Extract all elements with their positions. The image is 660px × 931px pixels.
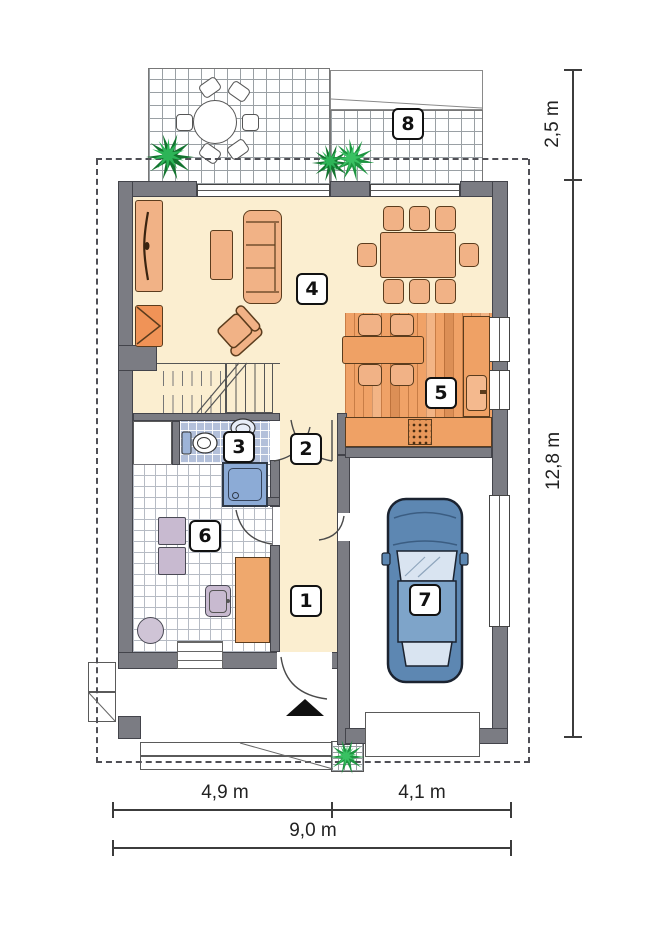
- room-label-6: 6: [189, 520, 221, 552]
- dim-tick: [510, 840, 512, 856]
- room-number: 8: [401, 113, 414, 135]
- dim-label-bottom-total: 9,0 m: [263, 820, 363, 842]
- room-number: 1: [299, 590, 312, 612]
- dim-tick: [331, 802, 333, 818]
- room-label-8: 8: [392, 108, 424, 140]
- room-number: 5: [434, 382, 447, 404]
- room-label-2: 2: [290, 433, 322, 465]
- dim-tick: [510, 802, 512, 818]
- room-number: 4: [305, 278, 318, 300]
- terrace-table: [193, 100, 237, 144]
- dim-line-right: [572, 70, 574, 738]
- terrace-chair: [176, 114, 193, 131]
- dim-tick: [112, 840, 114, 856]
- dim-tick: [564, 179, 582, 181]
- room-label-4: 4: [296, 273, 328, 305]
- dim-label-bottom-left: 4,9 m: [175, 782, 275, 804]
- dim-label-right-top: 2,5 m: [542, 94, 562, 154]
- room-label-5: 5: [425, 377, 457, 409]
- room-number: 2: [299, 438, 312, 460]
- dim-label-bottom-right: 4,1 m: [372, 782, 472, 804]
- dim-line-bottom-total: [113, 847, 512, 849]
- roof-overhang-outline-top: [96, 158, 528, 160]
- room-label-1: 1: [290, 585, 322, 617]
- dim-label-right-main: 12,8 m: [543, 424, 563, 498]
- dim-tick: [564, 69, 582, 71]
- room-label-3: 3: [223, 431, 255, 463]
- dim-line-bottom-split: [113, 809, 512, 811]
- room-number: 6: [198, 525, 211, 547]
- dim-tick: [564, 736, 582, 738]
- room-number: 7: [418, 589, 431, 611]
- terrace-chair: [242, 114, 259, 131]
- roof-edge-sketch: [330, 70, 483, 110]
- dim-tick: [112, 802, 114, 818]
- room-label-7: 7: [409, 584, 441, 616]
- room-number: 3: [232, 436, 245, 458]
- floor-plan: 1 2 3 4 5 6 7 8 2,5 m 12,8 m 4,9 m 4,1 m…: [0, 0, 660, 931]
